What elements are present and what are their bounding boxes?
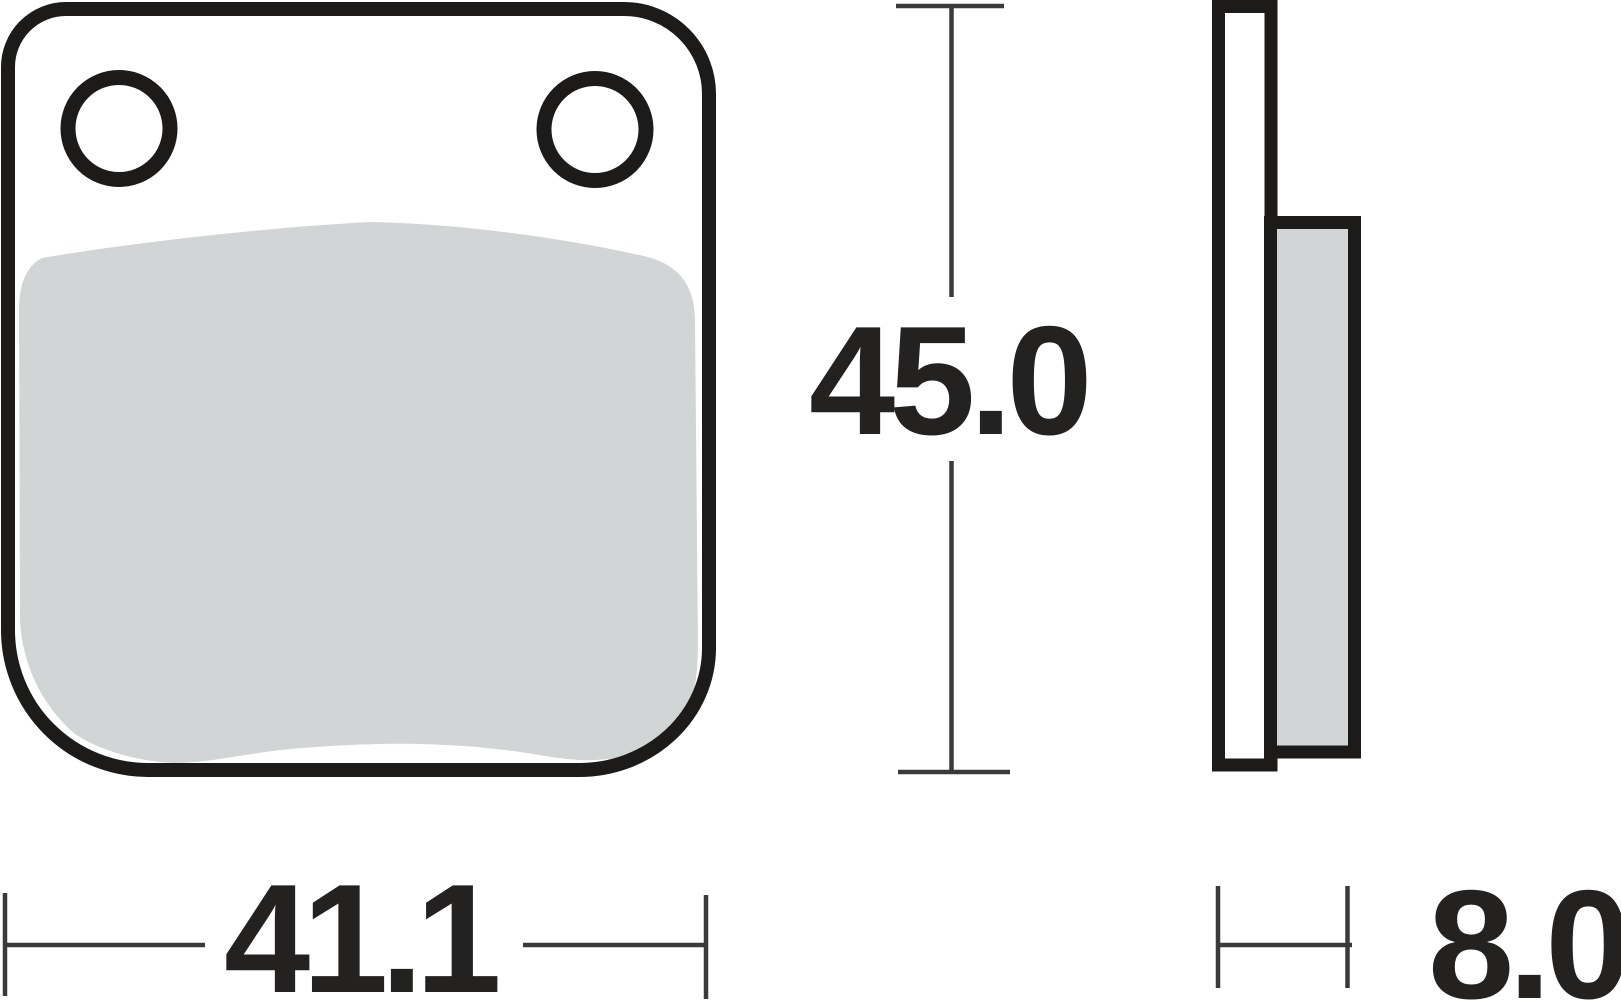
svg-text:45.0: 45.0	[809, 294, 1087, 467]
svg-text:8.0: 8.0	[1428, 858, 1621, 1000]
svg-text:41.1: 41.1	[224, 852, 497, 1000]
